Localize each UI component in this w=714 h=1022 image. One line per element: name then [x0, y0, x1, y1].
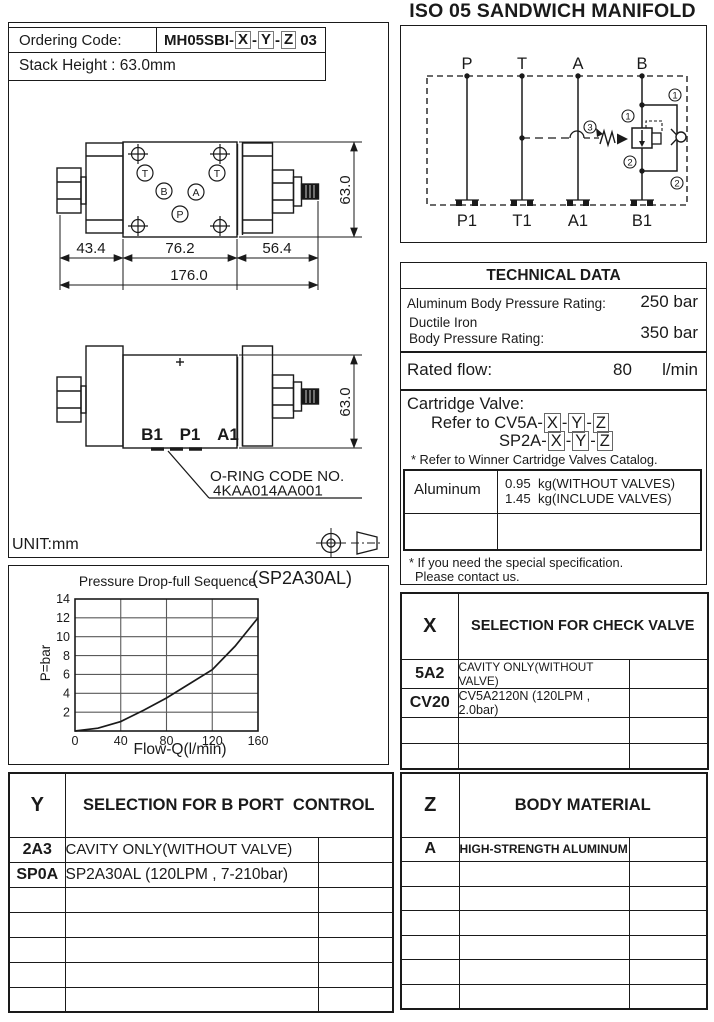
option-extra: [629, 717, 708, 743]
sep: -: [275, 32, 280, 49]
z-table-title: BODY MATERIAL: [459, 773, 707, 837]
option-desc: [65, 987, 318, 1012]
page-title: ISO 05 SANDWICH MANIFOLD: [398, 0, 707, 22]
rated-flow-unit: l/min: [662, 360, 698, 380]
z-code-header: Z: [401, 773, 459, 837]
option-code: 5A2: [401, 659, 458, 688]
option-code: [401, 886, 459, 911]
option-desc: CAVITY ONLY(WITHOUT VALVE): [458, 659, 629, 688]
option-code: [9, 937, 65, 962]
x-tick-label: 160: [248, 734, 269, 748]
option-code: CV20: [401, 688, 458, 717]
dim-76-2: 76.2: [165, 240, 194, 257]
table-row: CV20 CV5A2120N (120LPM , 2.0bar): [401, 688, 708, 717]
port-b: B: [636, 55, 647, 73]
dim-63-0: 63.0: [337, 175, 354, 204]
special-spec-note-1: * If you need the special specification.: [409, 555, 623, 570]
schematic-bottom-port-labels: P1 T1 A1 B1: [457, 212, 652, 230]
divider: [401, 351, 706, 353]
option-desc: [459, 862, 629, 887]
x-code-header: X: [401, 593, 458, 659]
option-extra: [318, 962, 393, 987]
table-row: [401, 984, 707, 1009]
y-tick-label: 12: [56, 611, 70, 625]
pressure-drop-chart: 040801201602468101214: [8, 565, 389, 765]
dim-176-0: 176.0: [170, 267, 208, 284]
option-code: [9, 912, 65, 937]
option-extra: [318, 887, 393, 912]
option-desc: [65, 937, 318, 962]
sequence-valve-symbol: [600, 121, 662, 148]
table-row: [9, 912, 393, 937]
x-tick-label: 0: [72, 734, 79, 748]
b-port-control-selection-table: Y SELECTION FOR B PORT CONTROL 2A3 CAVIT…: [8, 772, 394, 1013]
table-row: [401, 862, 707, 887]
table-row: [401, 960, 707, 985]
option-desc: HIGH-STRENGTH ALUMINUM: [459, 837, 629, 862]
port-t1: T1: [512, 212, 531, 230]
port-t: T: [517, 55, 527, 73]
port-label-t1: T: [142, 168, 149, 180]
manifold-front-view-drawing: B1 P1 A1 O-RING CODE NO. 4KAA014AA001 63…: [10, 338, 382, 513]
x-tick-label: 80: [160, 734, 174, 748]
divider: [405, 513, 700, 514]
table-row: [401, 935, 707, 960]
callout-3: 3: [587, 123, 592, 134]
option-extra: [629, 911, 707, 936]
port-b1: B1: [632, 212, 652, 230]
option-desc: SP2A30AL (120LPM , 7-210bar): [65, 862, 318, 887]
technical-data-title: TECHNICAL DATA: [401, 263, 706, 289]
option-code: [401, 717, 458, 743]
port-a1: A1: [568, 212, 588, 230]
option-code: [9, 962, 65, 987]
x-table-title: SELECTION FOR CHECK VALVE: [458, 593, 708, 659]
option-extra: [318, 912, 393, 937]
ordering-code-suffix: 03: [300, 32, 317, 49]
y-tick-label: 10: [56, 630, 70, 644]
table-row: [9, 962, 393, 987]
schematic-top-port-labels: P T A B: [461, 55, 647, 73]
option-extra: [318, 837, 393, 862]
manifold-top-view-drawing: T T B A P 43.4 76.2 56.4 176.0 63.0: [10, 130, 382, 298]
option-desc: [458, 743, 629, 769]
aluminum-rating-label: Aluminum Body Pressure Rating:: [407, 296, 606, 311]
option-code: [9, 987, 65, 1012]
option-desc: CAVITY ONLY(WITHOUT VALVE): [65, 837, 318, 862]
option-extra: [629, 837, 707, 862]
aluminum-rating-value: 250 bar: [640, 292, 698, 312]
option-extra: [629, 960, 707, 985]
table-row: 2A3 CAVITY ONLY(WITHOUT VALVE): [9, 837, 393, 862]
option-code: [401, 743, 458, 769]
y-code-header: Y: [9, 773, 65, 837]
ordering-code-x: X: [235, 31, 251, 50]
ductile-rating-label: Ductile Iron Body Pressure Rating:: [409, 315, 544, 347]
x-tick-label: 120: [202, 734, 223, 748]
option-extra: [318, 937, 393, 962]
dim-43-4: 43.4: [76, 240, 105, 257]
table-header-row: X SELECTION FOR CHECK VALVE: [401, 593, 708, 659]
oring-callout: O-RING CODE NO. 4KAA014AA001: [151, 449, 362, 500]
y-tick-label: 14: [56, 592, 70, 606]
option-extra: [318, 987, 393, 1012]
dim-63-0: 63.0: [337, 387, 354, 416]
y-table-title: SELECTION FOR B PORT CONTROL: [65, 773, 393, 837]
rated-flow-value: 80: [613, 360, 632, 380]
hydraulic-schematic: P T A B: [400, 25, 707, 243]
check-valve-symbol: [671, 129, 686, 145]
option-desc: [458, 717, 629, 743]
dimension-lines: [60, 142, 362, 290]
option-code: 2A3: [9, 837, 65, 862]
table-row: SP0A SP2A30AL (120LPM , 7-210bar): [9, 862, 393, 887]
cartridge-ref-sp2a: SP2A-X-Y-Z: [499, 431, 614, 451]
y-tick-label: 4: [63, 686, 70, 700]
option-extra: [629, 659, 708, 688]
option-code: [9, 887, 65, 912]
weight-material-cell: Aluminum: [405, 471, 498, 549]
port-label-b1: B1: [141, 425, 163, 444]
special-spec-note-2: Please contact us.: [415, 569, 520, 584]
rated-flow-label: Rated flow:: [407, 360, 492, 380]
option-desc: [65, 912, 318, 937]
unit-label: UNIT:mm: [12, 536, 79, 554]
sep: -: [252, 32, 257, 49]
table-row: A HIGH-STRENGTH ALUMINUM: [401, 837, 707, 862]
technical-data-panel: TECHNICAL DATA Aluminum Body Pressure Ra…: [400, 262, 707, 585]
ordering-code-value: MH05SBI-X-Y-Z03: [157, 31, 325, 50]
weight-material: Aluminum: [414, 481, 481, 498]
ordering-code-prefix: MH05SBI-: [164, 32, 234, 49]
option-desc: [459, 960, 629, 985]
option-extra: [629, 935, 707, 960]
cartridge-valve-label: Cartridge Valve:: [407, 395, 524, 414]
option-desc: [459, 984, 629, 1009]
y-tick-label: 2: [63, 705, 70, 719]
y-tick-label: 8: [63, 649, 70, 663]
option-code: [401, 935, 459, 960]
option-code: [401, 960, 459, 985]
option-code: [401, 984, 459, 1009]
ductile-rating-value: 350 bar: [640, 323, 698, 343]
ordering-code-y: Y: [258, 31, 274, 50]
ordering-code-row: Ordering Code: MH05SBI-X-Y-Z03: [8, 27, 326, 53]
table-row: 5A2 CAVITY ONLY(WITHOUT VALVE): [401, 659, 708, 688]
option-desc: [459, 911, 629, 936]
port-label-a: A: [192, 187, 199, 199]
option-desc: [459, 886, 629, 911]
port-label-a1: A1: [217, 425, 239, 444]
option-desc: [65, 887, 318, 912]
option-extra: [629, 984, 707, 1009]
option-desc: CV5A2120N (120LPM , 2.0bar): [458, 688, 629, 717]
oring-code-number: 4KAA014AA001: [213, 483, 323, 500]
option-code: [401, 911, 459, 936]
option-code: [401, 862, 459, 887]
table-header-row: Z BODY MATERIAL: [401, 773, 707, 837]
ordering-code-label: Ordering Code:: [9, 28, 157, 52]
stack-height-row: Stack Height : 63.0mm: [8, 53, 326, 81]
ordering-code-z: Z: [281, 31, 296, 50]
callout-2: 2: [627, 158, 632, 169]
port-label-b: B: [160, 186, 167, 198]
option-desc: [459, 935, 629, 960]
y-tick-label: 6: [63, 668, 70, 682]
callout-2b: 2: [674, 179, 679, 190]
table-row: [401, 717, 708, 743]
table-row: [401, 911, 707, 936]
port-p: P: [461, 55, 472, 73]
body-outline: [57, 142, 319, 237]
table-row: [401, 886, 707, 911]
callout-1: 1: [625, 112, 630, 123]
option-extra: [629, 688, 708, 717]
x-tick-label: 40: [114, 734, 128, 748]
port-a: A: [572, 55, 583, 73]
datasheet-page: ISO 05 SANDWICH MANIFOLD Ordering Code: …: [0, 0, 714, 1022]
option-extra: [629, 743, 708, 769]
weight-include-valves: 1.45 kg(INCLUDE VALVES): [505, 491, 672, 506]
table-row: [9, 887, 393, 912]
option-code: A: [401, 837, 459, 862]
catalog-note: * Refer to Winner Cartridge Valves Catal…: [411, 452, 658, 467]
port-label-p1: P1: [180, 425, 201, 444]
port-label-t2: T: [214, 168, 221, 180]
divider: [401, 389, 706, 391]
bottom-port-labels: B1 P1 A1: [141, 425, 239, 444]
port-p1: P1: [457, 212, 477, 230]
weight-table: Aluminum 0.95 kg(WITHOUT VALVES) 1.45 kg…: [403, 469, 702, 551]
check-valve-selection-table: X SELECTION FOR CHECK VALVE 5A2 CAVITY O…: [400, 592, 709, 770]
callout-1b: 1: [672, 91, 677, 102]
dim-56-4: 56.4: [262, 240, 291, 257]
option-extra: [629, 862, 707, 887]
option-desc: [65, 962, 318, 987]
port-label-p: P: [176, 209, 183, 221]
table-row: [9, 937, 393, 962]
junction-dots: [464, 73, 644, 173]
option-extra: [318, 862, 393, 887]
weight-without-valves: 0.95 kg(WITHOUT VALVES): [505, 476, 675, 491]
option-code: SP0A: [9, 862, 65, 887]
projection-symbol-icon: [313, 527, 387, 559]
table-row: [9, 987, 393, 1012]
table-header-row: Y SELECTION FOR B PORT CONTROL: [9, 773, 393, 837]
body-material-selection-table: Z BODY MATERIAL A HIGH-STRENGTH ALUMINUM: [400, 772, 708, 1010]
option-extra: [629, 886, 707, 911]
table-row: [401, 743, 708, 769]
